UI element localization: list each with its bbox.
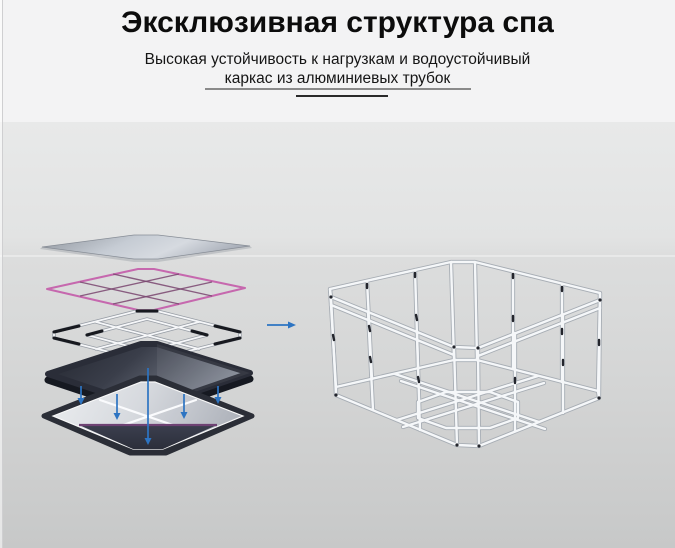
exploded-layer-stack xyxy=(40,235,252,453)
diagram-canvas xyxy=(0,122,675,548)
header: Эксклюзивная структура спа Высокая устой… xyxy=(0,0,675,122)
page-title: Эксклюзивная структура спа xyxy=(0,6,675,40)
subtitle-line-2: каркас из алюминиевых трубок xyxy=(0,69,675,88)
top-cover-layer xyxy=(40,235,252,262)
subtitle: Высокая устойчивость к нагрузкам и водоу… xyxy=(0,50,675,88)
divider-line-dark xyxy=(296,95,388,97)
divider-line-gray xyxy=(205,88,471,90)
subtitle-line-1: Высокая устойчивость к нагрузкам и водоу… xyxy=(0,50,675,69)
product-infographic: Эксклюзивная структура спа Высокая устой… xyxy=(0,0,675,548)
page-edge-line xyxy=(2,0,3,548)
right-arrow-icon xyxy=(267,322,296,329)
aluminum-tube-frame xyxy=(329,262,601,448)
studio-scene xyxy=(0,122,675,548)
pink-grid-liner-layer xyxy=(47,269,245,310)
